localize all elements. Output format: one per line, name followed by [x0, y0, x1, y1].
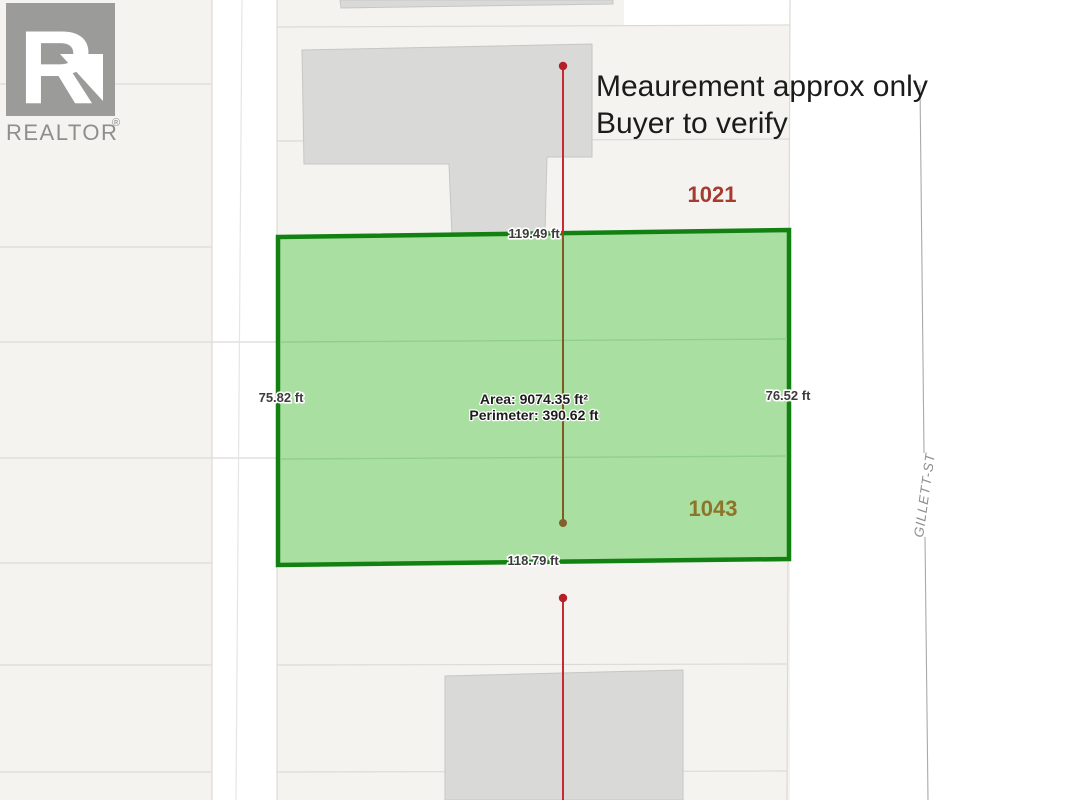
- lot-edge-label-top: 119.49 ft: [508, 226, 560, 241]
- survey-point-bottom: [559, 594, 567, 602]
- parcel-map-canvas: GILLETT-ST 119.49 ft 118.79 ft 75.82 ft …: [0, 0, 1067, 800]
- lot-perimeter-label: Perimeter: 390.62 ft: [469, 407, 599, 423]
- lot-number-south: 1043: [689, 496, 738, 521]
- lot-edge-label-bottom: 118.79 ft: [507, 553, 559, 568]
- parcel-map-image: GILLETT-ST 119.49 ft 118.79 ft 75.82 ft …: [0, 0, 1067, 800]
- lot-number-north: 1021: [688, 182, 737, 207]
- street-centerline: [920, 85, 928, 800]
- disclaimer-line1: Meaurement approx only: [596, 70, 928, 103]
- survey-point-top: [559, 62, 567, 70]
- disclaimer-line2: Buyer to verify: [596, 107, 788, 140]
- top-right-open-area: [624, 0, 790, 26]
- registered-trademark-symbol: ®: [112, 117, 120, 129]
- street-name-label: GILLETT-ST: [911, 451, 938, 538]
- lot-area-label: Area: 9074.35 ft²: [480, 391, 589, 407]
- realtor-logo: R REALTOR ®: [6, 3, 120, 145]
- lot-edge-label-left: 75.82 ft: [259, 390, 304, 405]
- survey-point-mid: [559, 519, 567, 527]
- realtor-logo-text: REALTOR: [6, 120, 118, 145]
- lot-edge-label-right: 76.52 ft: [766, 388, 811, 403]
